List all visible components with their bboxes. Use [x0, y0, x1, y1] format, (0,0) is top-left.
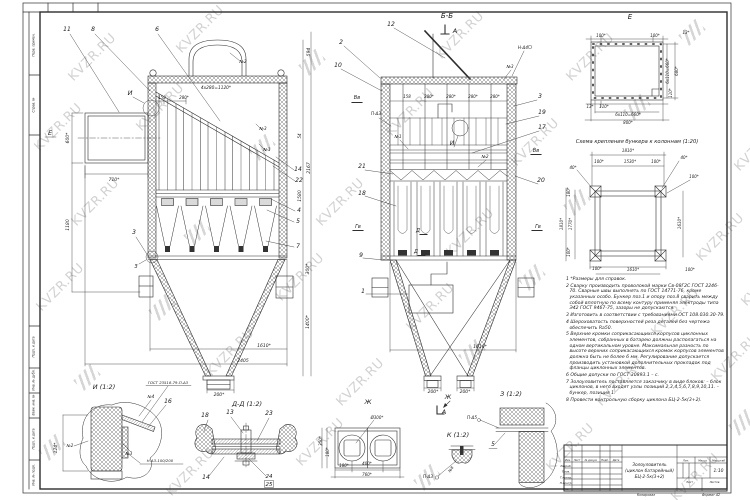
footer-copied-label: Копировал	[637, 493, 655, 497]
dim-label: 600*	[65, 132, 71, 144]
dim-label: Схема крепления бункера к колоннам (1:20…	[576, 139, 699, 145]
note-item: 8 Провести контрольную сборку циклона БЦ…	[566, 398, 725, 404]
dim-label: 1770*	[568, 218, 573, 230]
dim-label: П-Δ3	[371, 111, 382, 116]
dim-label: 24	[266, 474, 273, 480]
stamp-col-header: Дата	[612, 458, 620, 462]
dim-label: К (1:2)	[447, 431, 469, 439]
dim-label: 23	[265, 410, 273, 417]
margin-label: Инв. № подл.	[32, 464, 36, 485]
title-block-grid	[564, 445, 727, 491]
dim-label: И (1:2)	[93, 383, 115, 391]
stamp-col-header: Изм.	[565, 458, 571, 462]
front-view	[45, 32, 311, 393]
dim-label: З (1:2)	[500, 390, 522, 398]
dim-label: И	[450, 140, 455, 147]
dim-label: 180*	[339, 463, 349, 468]
margin-label: Взам. инв. №	[32, 394, 36, 415]
dim-label: №2	[238, 59, 246, 65]
stamp-row-header: Т.контр.	[560, 475, 572, 479]
dim-label: 6х110=660*	[665, 58, 670, 84]
stamp-right-header: Масштаб	[712, 459, 725, 463]
dim-label: 2	[339, 39, 343, 46]
margin-label: Подп. и дата	[32, 428, 36, 449]
dim-label: 1610*	[627, 267, 639, 272]
stamp-col-header: Лист	[573, 458, 581, 462]
dim-label: 280*	[468, 94, 478, 99]
note-item: 5 Верхние кромки соприкасающихся корпусо…	[566, 332, 725, 372]
dim-label: №3	[125, 451, 133, 456]
dim-label: 14	[202, 474, 210, 481]
dim-label: 2167	[306, 162, 312, 174]
dim-label: А	[441, 408, 446, 416]
dim-label: 40*	[680, 155, 687, 160]
dim-label: 158	[403, 94, 411, 99]
note-item: 7 Золоуловитель поставляется заказчику в…	[566, 380, 725, 397]
stamp-bottom-header: Лист	[685, 480, 693, 484]
dim-label: 20	[537, 177, 545, 184]
stamp-bottom-header: Листов	[708, 480, 719, 484]
dim-label: 158	[158, 95, 166, 100]
detail-z	[478, 403, 558, 488]
stamp-col-header: № докум.	[584, 459, 598, 462]
dim-label: 13*	[586, 104, 593, 109]
dim-label: 54	[297, 133, 302, 139]
dim-label: Ж	[363, 398, 372, 406]
note-item: 4 Шероховатость поверхностей реза детале…	[566, 320, 725, 331]
dim-label: №1	[262, 147, 270, 153]
technical-notes: 1 *Размеры для справок.2 Сварку производ…	[566, 277, 725, 404]
dim-label: 12	[387, 21, 395, 28]
stamp-right-header: Масса	[698, 459, 707, 463]
dim-label: 280*	[424, 94, 434, 99]
dim-label: 100*	[685, 267, 695, 272]
view-zh	[322, 420, 404, 478]
dim-label: 200*	[460, 389, 472, 395]
dim-label: 200*	[428, 389, 440, 395]
dim-label: №4	[147, 394, 155, 399]
dim-label: 680*	[674, 66, 679, 76]
dim-label: Н-Δ3-100/200	[147, 458, 174, 463]
margin-label: Подп. и дата	[32, 336, 36, 357]
dim-label: 19	[538, 109, 546, 116]
dim-label: 280*	[490, 94, 500, 99]
stamp-row-header: Н.контр.	[560, 481, 573, 485]
stamp-row-header: Утв.	[563, 487, 569, 491]
dim-label: №8	[446, 465, 455, 474]
stamp-row-header: Пров.	[562, 470, 570, 474]
dim-label: Вв	[354, 95, 360, 101]
stamp-product-name: БЦ-2-5к(3+2)	[635, 474, 665, 480]
dim-label: 1580	[297, 190, 303, 202]
margin-label: Инв. № дубл.	[32, 369, 36, 390]
dim-label: 180*	[325, 447, 330, 457]
dim-label: 3	[132, 229, 136, 236]
dim-label: №1	[393, 134, 401, 139]
dim-label: 400*	[362, 461, 372, 466]
dim-label: 10	[334, 62, 342, 69]
dim-label: Ж	[444, 394, 452, 401]
note-item: 6 Общие допуски по ГОСТ 30893.1 – с.	[566, 373, 725, 379]
dim-label: 13	[226, 409, 234, 416]
dim-label: Д-Д (1:2)	[231, 400, 262, 408]
stamp-col-header: Подп.	[601, 458, 609, 462]
dim-label: 1	[361, 288, 365, 295]
dim-label: 350*	[318, 436, 323, 446]
dim-label: И	[128, 89, 133, 97]
margin-label: Справ. №	[32, 97, 36, 112]
dim-label: 7	[296, 243, 300, 250]
dim-label: 1180	[65, 219, 71, 231]
dim-label: 280*	[446, 94, 456, 99]
margin-label: Перв. примен.	[32, 33, 36, 56]
dim-label: 6х110=660*	[615, 112, 641, 117]
dim-label: 17	[538, 124, 546, 131]
dim-label: Гв	[535, 224, 541, 230]
blueprint-page: KVZR.RUKVZR.RUKVZR.RUKVZR.RUKVZR.RUKVZR.…	[0, 0, 750, 500]
dim-label: 124*	[53, 442, 59, 454]
dim-label: 2405	[237, 358, 249, 364]
dim-label: 1610*	[257, 343, 271, 349]
dim-label: Вв	[533, 148, 539, 154]
dim-label: Д	[415, 228, 420, 234]
drawing-canvas: 1186№24х280=1120*158280*ИЕ600*710*11803З…	[0, 0, 750, 500]
dim-label: 1810*	[559, 218, 564, 230]
dim-label: 1530*	[624, 159, 636, 164]
dim-label: 100*	[596, 33, 606, 38]
detail-k	[435, 446, 475, 479]
footer-format-label: Формат А2	[702, 493, 720, 497]
dim-label: 760*	[362, 472, 372, 477]
dim-label: 9	[359, 252, 363, 259]
dim-label: 180*	[566, 187, 571, 197]
dim-label: 22	[295, 177, 303, 184]
note-item: 1 *Размеры для справок.	[566, 277, 725, 283]
dim-label: З	[134, 264, 138, 270]
stamp-row-header: Разраб.	[561, 464, 572, 468]
dim-label: Б-Б	[441, 12, 453, 20]
dim-label: 280*	[179, 95, 189, 100]
dim-label: 710*	[109, 177, 121, 183]
dim-label: 4	[297, 207, 301, 214]
dim-label: 100*	[592, 266, 602, 271]
note-item: 3 Изготовить в соответствии с требования…	[566, 313, 725, 319]
dim-label: 5	[491, 441, 495, 448]
dim-label: №2	[66, 443, 74, 448]
dim-label: Гв	[355, 224, 361, 230]
dim-label: 1810*	[622, 148, 634, 153]
dim-label: 40*	[569, 165, 576, 170]
dim-label: 1610*	[677, 217, 682, 229]
stamp-product-name: Золоуловитель	[632, 462, 667, 468]
dim-label: 4х280=1120*	[201, 85, 232, 91]
schema-bunker	[566, 152, 690, 274]
dim-label: П-Δ3	[423, 474, 434, 479]
dim-label: Е	[48, 129, 53, 137]
stamp-scale-value: 1:10	[713, 468, 723, 474]
dim-label: 21	[358, 163, 366, 170]
dim-label: 8	[91, 26, 95, 33]
dim-label: Е	[628, 13, 633, 21]
dim-label: 1400*	[305, 314, 311, 328]
dim-label: 3	[538, 93, 542, 100]
dim-label: 18	[358, 190, 366, 197]
dim-label: 1610*	[473, 344, 487, 350]
dim-label: ГОСТ 23518-79-П-Δ3	[148, 380, 189, 385]
dim-label: 14	[294, 166, 302, 173]
section-view	[341, 25, 542, 414]
dim-label: А	[452, 27, 457, 35]
dim-label: 13*	[682, 30, 689, 35]
stamp-product-name: (циклон батарейный)	[625, 468, 674, 474]
dim-label: 110*	[599, 104, 609, 109]
detail-dd	[195, 417, 297, 488]
dim-label: 300*	[305, 263, 311, 275]
dim-label: 100*	[689, 174, 699, 179]
dim-label: П-Δ5	[467, 415, 478, 420]
note-item: 2 Сварку производить проволокой марки Св…	[566, 284, 725, 312]
dim-label: 100*	[651, 159, 661, 164]
dim-label: Ø300*	[370, 415, 384, 420]
dim-label: 11	[63, 26, 71, 33]
dim-label: 16	[164, 398, 172, 405]
dim-label: 100*	[594, 159, 604, 164]
dim-label: №2	[480, 154, 488, 159]
dim-label: 6	[155, 26, 159, 33]
dim-label: 5	[296, 218, 300, 225]
dim-label: 200*	[214, 392, 226, 398]
stamp-right-header: Лит.	[682, 459, 689, 463]
dim-label: 800*	[623, 120, 633, 125]
dim-label: 100*	[650, 33, 660, 38]
dim-label: Д	[413, 249, 418, 255]
dim-label: 25	[266, 482, 273, 488]
dim-label: 100*	[566, 247, 571, 257]
dim-label: 18	[201, 412, 209, 419]
dim-label: 594	[306, 48, 312, 57]
dim-label: 110*	[668, 88, 673, 98]
dim-label: Н-Δ4	[518, 45, 529, 50]
dim-label: №3	[505, 64, 513, 69]
dim-label: №3	[258, 126, 266, 132]
